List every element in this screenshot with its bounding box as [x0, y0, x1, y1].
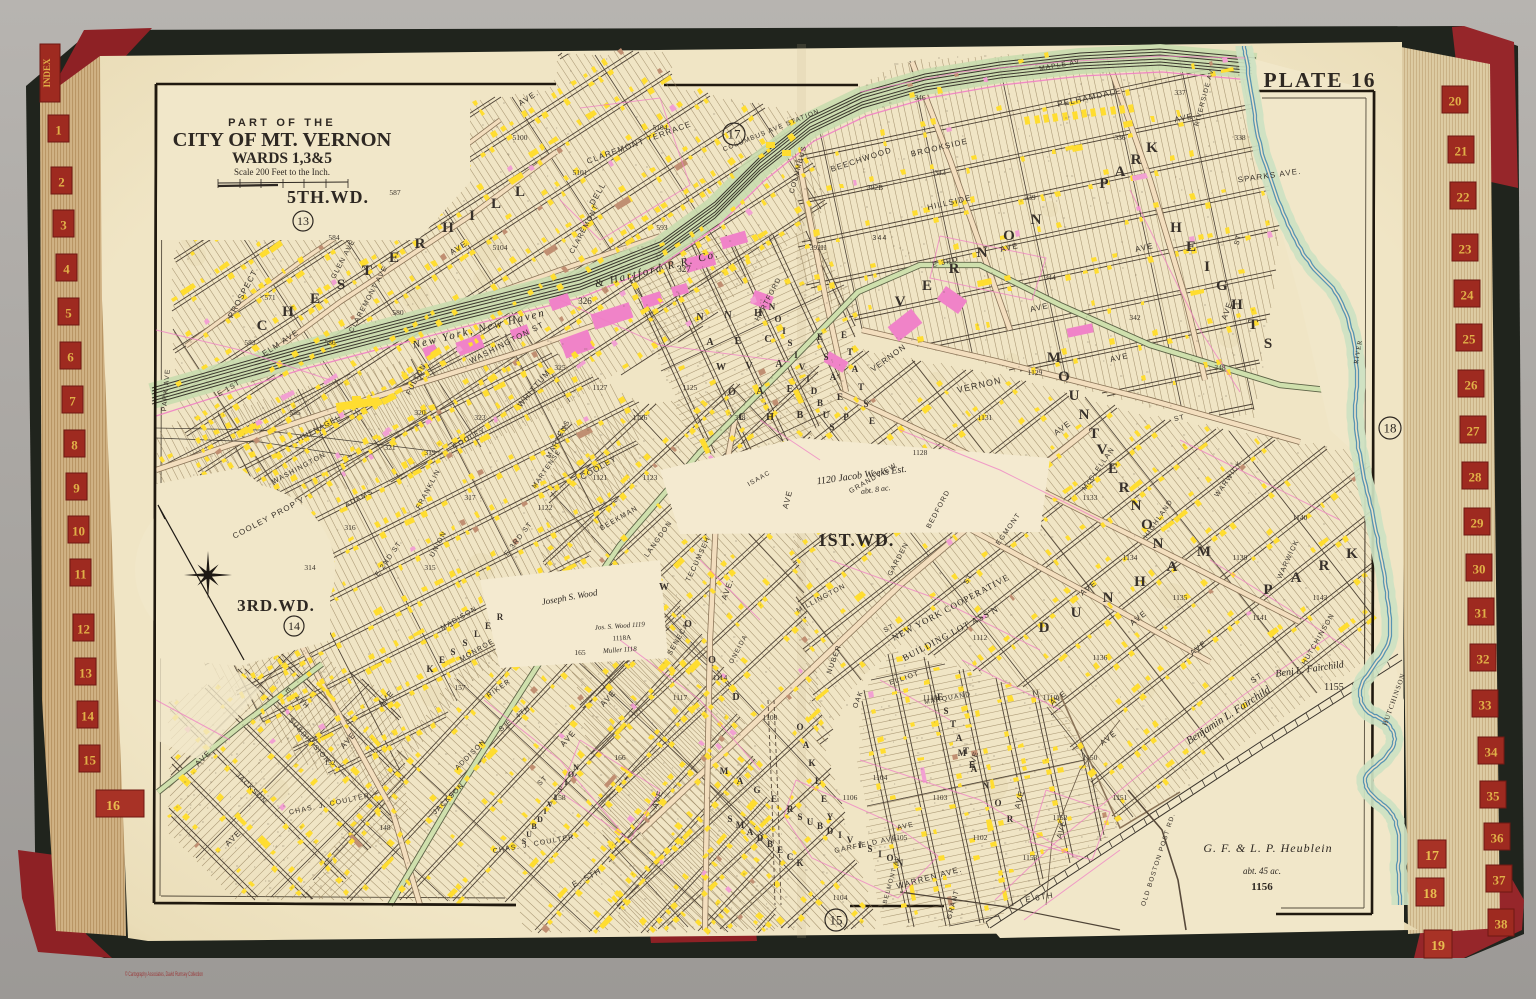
svg-text:5104: 5104: [653, 123, 668, 132]
svg-text:I: I: [543, 807, 546, 816]
svg-text:30: 30: [1473, 562, 1486, 577]
svg-text:I: I: [782, 326, 786, 336]
svg-text:18: 18: [1423, 887, 1437, 902]
svg-text:1126: 1126: [633, 413, 648, 422]
svg-text:H: H: [282, 304, 294, 320]
svg-text:586: 586: [324, 338, 336, 347]
svg-text:A: A: [956, 733, 963, 743]
svg-text:CITY OF MT. VERNON: CITY OF MT. VERNON: [173, 129, 392, 151]
svg-text:S: S: [450, 647, 455, 657]
svg-text:1156: 1156: [1251, 881, 1273, 893]
svg-text:24: 24: [1461, 288, 1475, 303]
svg-text:346: 346: [914, 93, 926, 102]
svg-text:E: E: [841, 330, 847, 340]
svg-text:1122: 1122: [538, 503, 553, 512]
svg-text:N: N: [1103, 590, 1114, 606]
svg-text:1: 1: [55, 123, 62, 138]
svg-text:O: O: [796, 722, 803, 732]
svg-text:392B: 392B: [867, 183, 883, 192]
svg-text:23: 23: [1459, 242, 1473, 257]
svg-text:T: T: [362, 263, 372, 279]
svg-text:34: 34: [1485, 745, 1499, 760]
svg-text:M: M: [1197, 544, 1211, 560]
svg-text:K: K: [796, 858, 803, 868]
svg-text:B: B: [767, 839, 773, 849]
svg-text:A: A: [830, 372, 837, 382]
svg-text:E: E: [787, 384, 794, 395]
svg-text:1114: 1114: [713, 673, 728, 682]
svg-text:316: 316: [344, 523, 356, 532]
svg-text:2: 2: [58, 175, 65, 190]
svg-text:580: 580: [392, 308, 404, 317]
svg-text:337: 337: [1174, 88, 1186, 97]
svg-text:I: I: [838, 830, 842, 840]
svg-text:1155: 1155: [1324, 682, 1344, 693]
svg-text:R: R: [1131, 152, 1142, 168]
svg-text:G: G: [753, 785, 760, 795]
svg-text:1143: 1143: [1313, 593, 1328, 602]
svg-text:9: 9: [73, 481, 80, 496]
svg-text:B: B: [817, 821, 823, 831]
svg-text:343: 343: [934, 168, 946, 177]
svg-text:T: T: [858, 382, 864, 392]
svg-text:A: A: [1115, 164, 1126, 180]
svg-text:E: E: [777, 845, 783, 855]
svg-text:I: I: [564, 778, 567, 787]
svg-text:E: E: [821, 794, 827, 804]
svg-text:587: 587: [389, 188, 401, 197]
svg-text:E: E: [1186, 239, 1196, 255]
svg-text:5100: 5100: [513, 133, 528, 142]
svg-text:344: 344: [1044, 273, 1056, 282]
svg-text:WARDS 1,3&5: WARDS 1,3&5: [232, 150, 332, 167]
svg-text:I: I: [469, 208, 475, 224]
svg-text:I: I: [1204, 259, 1210, 275]
svg-text:S: S: [797, 812, 802, 822]
svg-text:R: R: [1319, 558, 1330, 574]
svg-text:R: R: [497, 612, 504, 622]
svg-text:T: T: [950, 719, 956, 729]
svg-text:D: D: [1039, 620, 1050, 636]
svg-text:T: T: [1248, 317, 1258, 333]
svg-text:G: G: [1216, 278, 1228, 294]
svg-text:4: 4: [63, 262, 70, 277]
svg-text:1153: 1153: [1023, 853, 1038, 862]
svg-text:E: E: [869, 416, 875, 426]
svg-text:A: A: [1291, 570, 1302, 586]
svg-text:P: P: [1099, 176, 1108, 192]
svg-text:T: T: [963, 746, 969, 756]
svg-text:R: R: [787, 804, 794, 814]
svg-text:L: L: [815, 776, 821, 786]
svg-text:15: 15: [830, 913, 843, 928]
svg-text:B: B: [797, 410, 804, 421]
svg-text:1152: 1152: [1053, 813, 1068, 822]
svg-text:10: 10: [72, 524, 85, 539]
svg-text:1140: 1140: [1293, 513, 1308, 522]
svg-text:5104: 5104: [493, 243, 508, 252]
svg-text:32: 32: [1477, 652, 1490, 667]
svg-text:1136: 1136: [1093, 653, 1108, 662]
svg-text:D: D: [537, 815, 543, 824]
svg-text:S: S: [829, 422, 834, 432]
svg-text:E: E: [439, 655, 445, 665]
svg-text:R: R: [415, 236, 426, 252]
svg-text:1112: 1112: [973, 633, 988, 642]
svg-text:14: 14: [288, 619, 300, 633]
svg-text:N: N: [1131, 498, 1142, 514]
svg-text:A: A: [775, 359, 783, 370]
svg-text:E: E: [389, 250, 399, 266]
svg-text:E: E: [771, 794, 777, 804]
svg-text:H: H: [442, 220, 454, 236]
svg-text:N: N: [696, 312, 704, 323]
svg-text:1110: 1110: [923, 693, 938, 702]
svg-text:S: S: [823, 352, 828, 362]
svg-text:U: U: [526, 830, 532, 839]
svg-text:584: 584: [328, 233, 340, 242]
svg-text:1110: 1110: [1043, 693, 1058, 702]
svg-text:E: E: [735, 336, 742, 347]
svg-text:1141: 1141: [1253, 613, 1268, 622]
svg-text:H: H: [766, 412, 774, 423]
svg-text:L: L: [515, 184, 525, 200]
svg-text:15: 15: [83, 753, 97, 768]
svg-text:1108: 1108: [763, 713, 778, 722]
svg-text:N: N: [983, 781, 990, 791]
svg-text:A: A: [1167, 559, 1178, 575]
svg-text:P: P: [843, 412, 849, 422]
svg-text:26: 26: [1465, 378, 1479, 393]
svg-text:320: 320: [414, 408, 426, 417]
svg-text:A: A: [756, 386, 764, 397]
svg-text:20: 20: [1449, 94, 1462, 109]
svg-text:N: N: [1031, 212, 1042, 228]
svg-text:165: 165: [574, 648, 586, 657]
svg-text:321: 321: [384, 443, 396, 452]
svg-text:E: E: [922, 278, 932, 294]
svg-text:© Cartography Associates, Davi: © Cartography Associates, David Rumsey C…: [125, 971, 203, 978]
svg-text:319: 319: [424, 448, 436, 457]
svg-text:571: 571: [264, 293, 276, 302]
svg-text:P: P: [1263, 582, 1272, 598]
svg-text:36: 36: [1491, 831, 1505, 846]
svg-text:A: A: [737, 776, 744, 786]
svg-text:N: N: [573, 763, 579, 772]
svg-text:O: O: [728, 387, 736, 398]
svg-text:17: 17: [1425, 849, 1439, 864]
svg-text:E: E: [837, 392, 843, 402]
svg-text:N: N: [977, 245, 988, 261]
svg-text:C: C: [787, 852, 794, 862]
svg-text:38: 38: [1495, 917, 1509, 932]
svg-text:8: 8: [71, 438, 78, 453]
svg-text:7: 7: [69, 394, 76, 409]
svg-text:K: K: [1346, 546, 1358, 562]
svg-text:1129: 1129: [1028, 368, 1043, 377]
svg-text:O: O: [994, 798, 1001, 808]
svg-text:D: D: [827, 826, 834, 836]
svg-text:327: 327: [677, 264, 691, 274]
svg-text:O: O: [886, 853, 893, 863]
svg-text:1104: 1104: [873, 773, 888, 782]
svg-text:1128: 1128: [913, 448, 928, 457]
svg-text:1151: 1151: [1113, 793, 1128, 802]
svg-text:T: T: [847, 347, 853, 357]
svg-text:1121: 1121: [593, 473, 608, 482]
svg-text:5101: 5101: [573, 168, 588, 177]
svg-text:D: D: [811, 386, 818, 396]
svg-text:INDEX: INDEX: [42, 58, 52, 88]
svg-text:1139: 1139: [1233, 553, 1248, 562]
svg-text:21: 21: [1455, 144, 1468, 159]
svg-text:Scale 200 Feet to the Inch.: Scale 200 Feet to the Inch.: [234, 167, 330, 177]
svg-text:W: W: [716, 362, 726, 373]
svg-text:323: 323: [474, 413, 486, 422]
svg-text:326: 326: [578, 296, 592, 306]
svg-text:S: S: [863, 399, 868, 409]
svg-text:328: 328: [734, 413, 746, 422]
svg-text:1134: 1134: [1123, 553, 1138, 562]
svg-text:G. F. & L. P. Heublein: G. F. & L. P. Heublein: [1203, 841, 1332, 855]
svg-text:V: V: [745, 361, 753, 372]
svg-text:28: 28: [1469, 470, 1483, 485]
svg-text:31: 31: [1475, 606, 1488, 621]
svg-text:1117: 1117: [673, 693, 688, 702]
svg-text:A: A: [706, 337, 714, 348]
svg-text:13: 13: [79, 666, 93, 681]
svg-text:339: 339: [1024, 193, 1036, 202]
svg-text:1133: 1133: [1083, 493, 1098, 502]
svg-text:A: A: [747, 827, 754, 837]
svg-text:593: 593: [656, 223, 668, 232]
svg-text:A: A: [852, 364, 859, 374]
svg-text:S: S: [337, 277, 345, 293]
svg-text:29: 29: [1471, 516, 1485, 531]
svg-text:R: R: [1119, 480, 1130, 496]
svg-text:325: 325: [554, 363, 566, 372]
svg-text:22: 22: [1457, 190, 1470, 205]
svg-text:1103: 1103: [933, 793, 948, 802]
svg-text:16: 16: [106, 799, 120, 814]
svg-text:S: S: [787, 338, 792, 348]
svg-text:1104: 1104: [833, 893, 848, 902]
svg-text:1127: 1127: [593, 383, 608, 392]
svg-text:O: O: [774, 314, 781, 324]
svg-text:R: R: [1007, 814, 1014, 824]
svg-text:1118A: 1118A: [612, 633, 631, 642]
svg-text:25: 25: [1463, 332, 1477, 347]
svg-text:583: 583: [244, 338, 256, 347]
svg-text:K: K: [426, 664, 433, 674]
svg-text:1123: 1123: [643, 473, 658, 482]
svg-text:14: 14: [81, 709, 95, 724]
svg-text:1105: 1105: [893, 833, 908, 842]
svg-text:I: I: [806, 374, 810, 384]
svg-text:PLATE 16: PLATE 16: [1264, 68, 1377, 92]
svg-text:V: V: [799, 362, 806, 372]
svg-text:158: 158: [554, 793, 566, 802]
svg-text:M: M: [736, 820, 745, 830]
svg-text:L: L: [474, 629, 480, 639]
svg-text:N: N: [1079, 407, 1090, 423]
svg-text:314: 314: [304, 563, 316, 572]
svg-text:3RD.WD.: 3RD.WD.: [237, 596, 315, 615]
svg-text:585: 585: [289, 408, 301, 417]
svg-text:C: C: [257, 318, 268, 334]
svg-text:392H: 392H: [810, 243, 827, 252]
svg-text:U: U: [823, 410, 830, 420]
svg-text:U: U: [1071, 605, 1082, 621]
svg-text:M: M: [720, 766, 729, 776]
svg-text:O: O: [1058, 369, 1070, 385]
svg-text:W: W: [659, 582, 669, 593]
svg-text:E: E: [817, 332, 823, 342]
svg-text:5TH.WD.: 5TH.WD.: [287, 187, 369, 207]
svg-text:6: 6: [67, 350, 74, 365]
svg-text:19: 19: [1431, 939, 1445, 954]
svg-text:1102: 1102: [973, 833, 988, 842]
svg-text:1125: 1125: [683, 383, 698, 392]
svg-text:D: D: [757, 833, 764, 843]
svg-text:C: C: [764, 334, 771, 345]
svg-text:27: 27: [1467, 424, 1481, 439]
svg-text:E: E: [485, 621, 491, 631]
svg-text:3: 3: [60, 218, 67, 233]
svg-text:157: 157: [454, 683, 466, 692]
svg-text:L: L: [491, 196, 501, 212]
svg-text:E: E: [310, 291, 320, 307]
svg-text:O: O: [708, 655, 716, 666]
svg-text:35: 35: [1487, 789, 1501, 804]
svg-text:344: 344: [872, 235, 887, 242]
svg-text:H: H: [1170, 220, 1182, 236]
svg-text:A: A: [803, 740, 810, 750]
svg-text:33: 33: [1479, 698, 1493, 713]
svg-text:I: I: [794, 350, 798, 360]
svg-text:338: 338: [1234, 133, 1246, 142]
svg-text:152: 152: [324, 758, 336, 767]
svg-text:U: U: [807, 817, 814, 827]
svg-text:N: N: [724, 310, 732, 321]
svg-text:E: E: [1108, 461, 1118, 477]
svg-text:Y: Y: [827, 812, 834, 822]
svg-text:S: S: [943, 706, 948, 716]
svg-text:D: D: [732, 692, 739, 703]
svg-text:K: K: [808, 758, 815, 768]
svg-text:342: 342: [1129, 313, 1141, 322]
svg-text:S: S: [1264, 336, 1272, 352]
svg-text:V: V: [547, 800, 553, 809]
svg-text:13: 13: [297, 214, 309, 228]
svg-text:I: I: [878, 849, 882, 859]
svg-text:M: M: [1047, 350, 1061, 366]
svg-text:18: 18: [1384, 421, 1397, 436]
svg-text:12: 12: [77, 622, 90, 637]
svg-text:336: 336: [1114, 133, 1126, 142]
svg-text:S: S: [727, 814, 732, 824]
svg-text:1ST.WD.: 1ST.WD.: [818, 530, 895, 550]
svg-text:B: B: [817, 398, 823, 408]
svg-text:PART OF THE: PART OF THE: [228, 117, 336, 129]
svg-text:5: 5: [65, 306, 72, 321]
svg-text:T: T: [1089, 426, 1099, 442]
svg-text:H: H: [1134, 574, 1146, 590]
svg-text:K: K: [1146, 140, 1158, 156]
svg-text:148: 148: [379, 823, 391, 832]
svg-text:1150: 1150: [1083, 753, 1098, 762]
svg-text:166: 166: [614, 753, 626, 762]
svg-text:37: 37: [1493, 873, 1507, 888]
svg-text:U: U: [1069, 388, 1080, 404]
svg-text:317: 317: [464, 493, 476, 502]
svg-text:315: 315: [424, 563, 436, 572]
svg-text:11: 11: [74, 567, 86, 582]
svg-text:abt. 45 ac.: abt. 45 ac.: [1243, 866, 1281, 876]
svg-text:V: V: [895, 294, 906, 310]
svg-text:348: 348: [1214, 363, 1226, 372]
svg-text:1106: 1106: [843, 793, 858, 802]
svg-text:1131: 1131: [978, 413, 993, 422]
svg-text:1135: 1135: [1173, 593, 1188, 602]
svg-text:N: N: [1153, 536, 1164, 552]
svg-text:S: S: [462, 638, 467, 648]
